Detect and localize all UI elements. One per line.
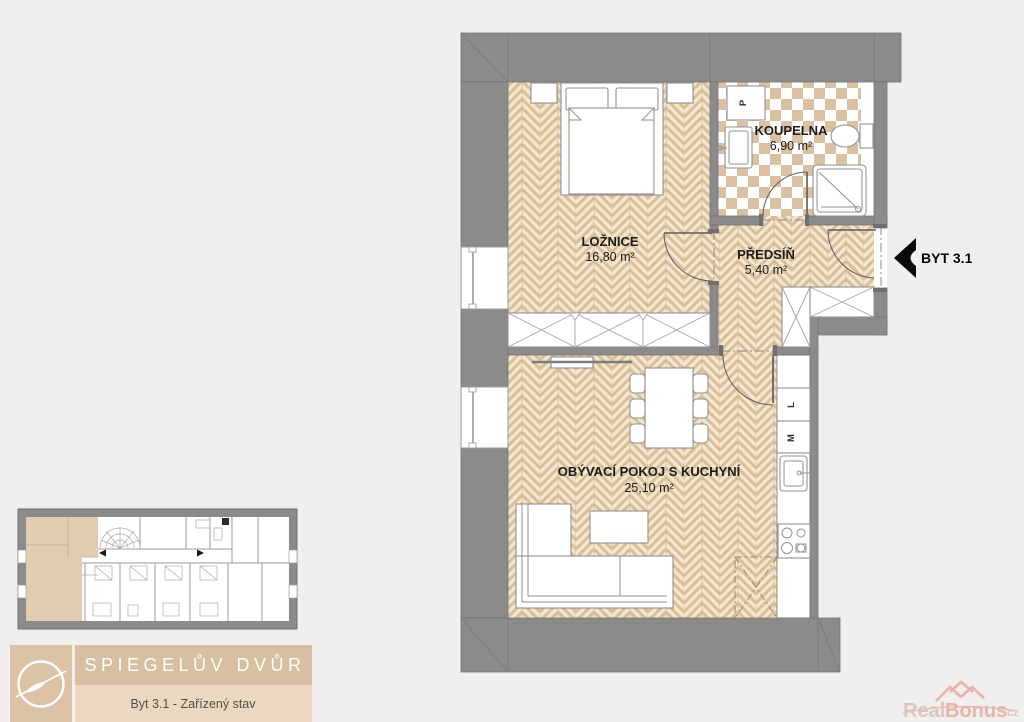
hall-wardrobe [782,287,874,347]
hall-floor-lower [718,288,782,347]
variant-subtitle: Byt 3.1 - Zařízený stav [130,697,256,711]
wall-living-top [508,347,723,355]
chair [630,399,645,418]
watermark: Real Bonus .cz [903,682,1019,722]
chair [693,399,708,418]
nightstand-right [667,83,693,103]
flat-label: BYT 3.1 [921,250,973,266]
dishwasher-label: M [786,434,797,442]
project-title: SPIEGELŮV DVŮR [84,654,305,675]
hall-name: PŘEDSÍŇ [737,247,795,262]
bedroom-name: LOŽNICE [581,234,638,249]
window-living [461,387,508,448]
chair [693,374,708,393]
brand-logo: SPIEGELŮV DVŮR Byt 3.1 - Zařízený stav [10,645,312,722]
watermark-cz: .cz [1004,707,1019,719]
entrance-arrow-icon [894,238,916,278]
washer-label: P [738,99,749,106]
wall-top [461,33,901,82]
nightstand-left [531,83,557,103]
toilet [831,124,873,148]
chair [630,424,645,443]
mini-floor-plan [18,509,297,629]
living-area: 25,10 m² [624,481,673,495]
kitchen-sink [780,456,810,491]
bathroom-area: 6,90 m² [770,139,812,153]
chair [630,374,645,393]
watermark-bonus: Bonus [945,700,1007,722]
dining-table [645,368,693,448]
bathroom-name: KOUPELNA [755,123,829,138]
wall-left [461,82,508,618]
chair [693,424,708,443]
entrance-marker: BYT 3.1 [894,238,973,278]
watermark-real: Real [903,700,945,722]
pillow [566,88,608,110]
stove [778,524,810,558]
fridge-label: L [786,402,797,408]
washing-machine: P [727,86,765,120]
wall-right-upper [874,82,887,228]
hall-area: 5,40 m² [745,263,787,277]
bedroom-area: 16,80 m² [585,250,634,264]
main-floor-plan: P [461,33,973,672]
wall-living-right [810,317,818,618]
wardrobe-row [508,313,710,347]
dining-set [630,368,708,448]
dishwasher: M [777,421,810,453]
wall-hall-step [810,317,887,335]
floorplan-page: P [0,0,1024,722]
wall-bottom [461,618,840,672]
wall-bath-bottom [710,216,763,225]
living-name: OBÝVACÍ POKOJ S KUCHYNÍ [558,464,741,479]
shower [813,165,866,216]
bed [561,83,663,195]
highlighted-unit [26,517,98,557]
pillow [616,88,658,110]
floorplan-canvas: P [0,0,1024,722]
window-bedroom [461,247,508,309]
coffee-table [590,511,648,543]
wall-bedroom-bath [710,82,718,233]
fridge: L [777,388,810,421]
